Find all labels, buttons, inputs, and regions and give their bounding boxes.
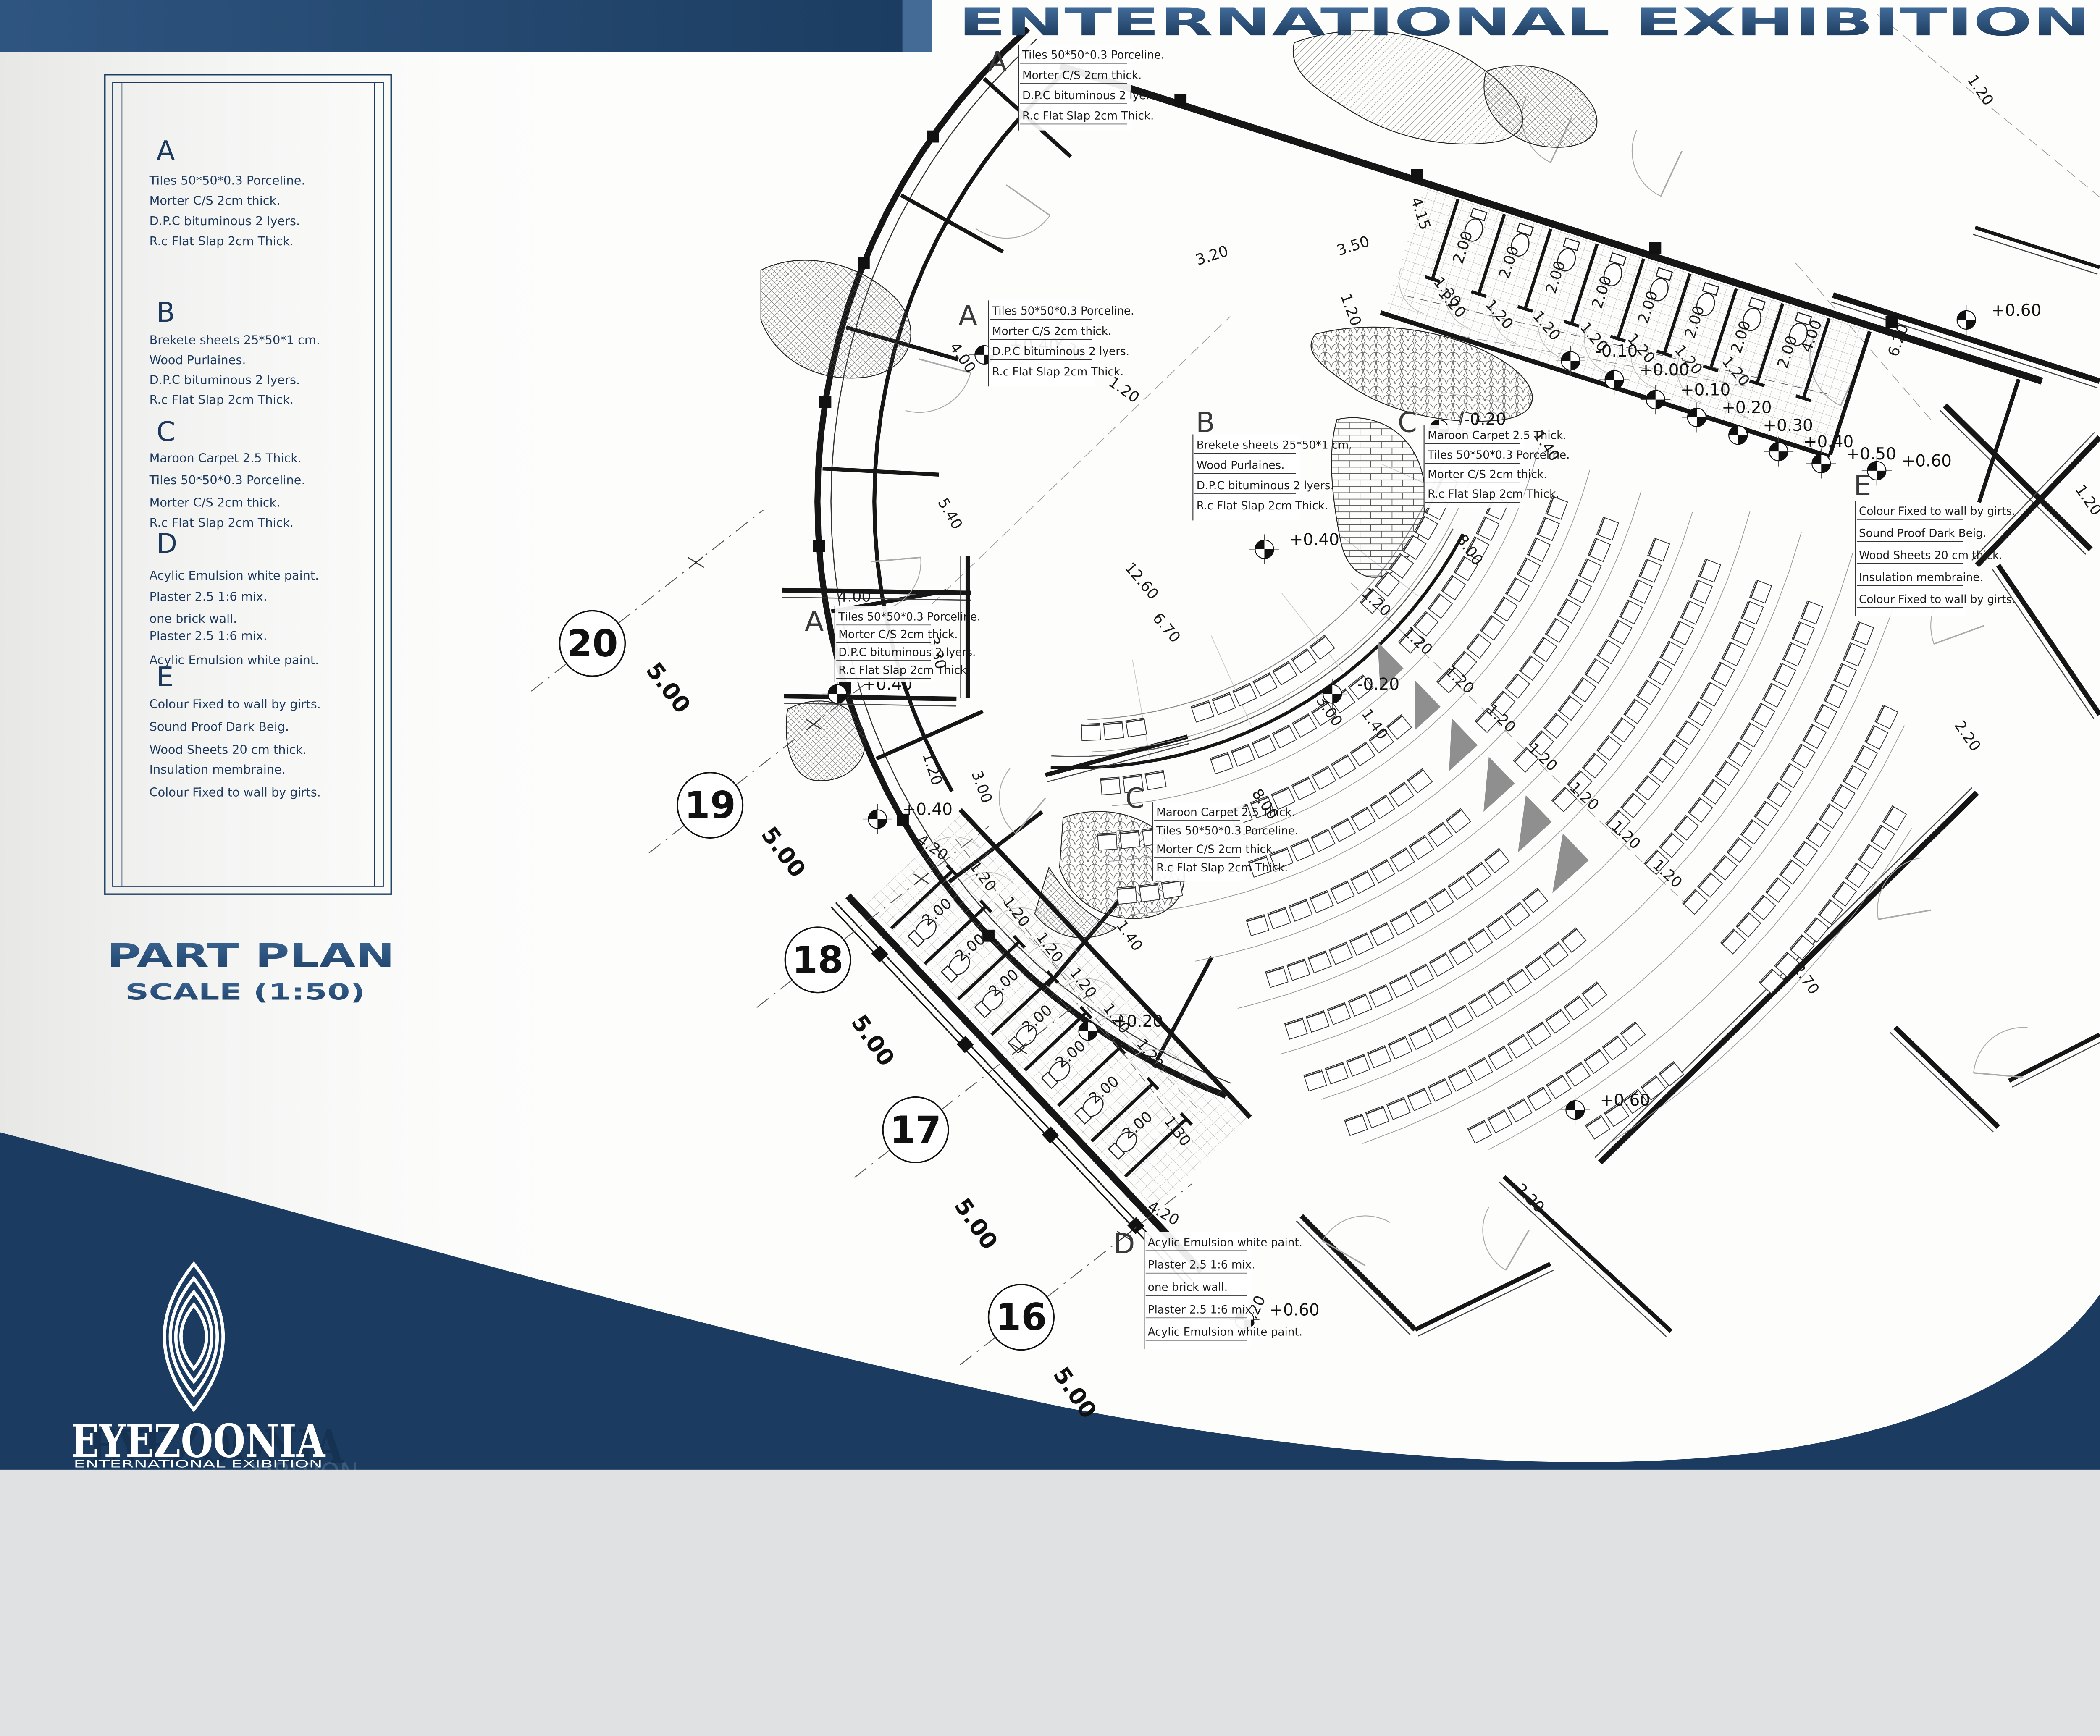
wall bbox=[784, 696, 957, 699]
seat bbox=[1081, 724, 1101, 741]
top-left-band-cap bbox=[903, 0, 932, 52]
seat bbox=[1161, 879, 1182, 899]
seat bbox=[1145, 771, 1166, 790]
legend-line: Colour Fixed to wall by girts. bbox=[150, 785, 321, 799]
legend-line: Tiles 50*50*0.3 Porceline. bbox=[149, 473, 305, 487]
legend-line: Insulation membraine. bbox=[150, 762, 286, 776]
legend-line: Sound Proof Dark Beig. bbox=[150, 720, 289, 734]
top-left-band bbox=[0, 0, 932, 52]
page-title: ENTERNATIONAL EXHIBITION bbox=[958, 0, 2091, 45]
note-line: Maroon Carpet 2.5 Thick. bbox=[1428, 430, 1567, 442]
seat bbox=[1104, 721, 1124, 740]
legend-line: Colour Fixed to wall by girts. bbox=[150, 697, 321, 711]
seat bbox=[1139, 883, 1160, 902]
wall bbox=[782, 590, 971, 593]
grid-bubble-number: 20 bbox=[567, 622, 618, 665]
note-line: Tiles 50*50*0.3 Porceline. bbox=[1022, 49, 1164, 62]
column bbox=[819, 396, 832, 408]
legend-line: D.P.C bituminous 2 lyers. bbox=[150, 372, 300, 387]
logo-subtitle: ENTERNATIONAL EXIBITION bbox=[73, 1458, 323, 1470]
note-line: Plaster 2.5 1:6 mix. bbox=[1148, 1259, 1255, 1272]
legend-line: Tiles 50*50*0.3 Porceline. bbox=[149, 173, 305, 187]
elevation-value: +0.40 bbox=[1289, 530, 1339, 549]
elevation-value: +0.60 bbox=[1991, 301, 2041, 320]
drawing-sheet: 20191817165.005.005.005.005.004.004.004.… bbox=[0, 0, 2100, 1470]
elevation-value: -0.10 bbox=[1596, 342, 1638, 361]
legend-letter: E bbox=[157, 661, 174, 693]
note-line: Sound Proof Dark Beig. bbox=[1859, 527, 1986, 540]
legend-letter: A bbox=[157, 135, 175, 167]
legend-letter: B bbox=[157, 297, 175, 328]
note-line: Tiles 50*50*0.3 Porceline. bbox=[838, 611, 980, 623]
note-line: Acylic Emulsion white paint. bbox=[1148, 1236, 1302, 1249]
note-letter: C bbox=[1398, 406, 1417, 439]
column bbox=[927, 131, 939, 143]
seat bbox=[1117, 886, 1137, 904]
note-line: R.c Flat Slap 2cm Thick. bbox=[992, 366, 1123, 378]
note-line: D.P.C bituminous 2 lyers. bbox=[1197, 480, 1334, 492]
note-line: Morter C/S 2cm thick. bbox=[992, 325, 1111, 338]
note-line: Tiles 50*50*0.3 Porceline. bbox=[1156, 825, 1298, 837]
note-line: Tiles 50*50*0.3 Porceline. bbox=[992, 305, 1134, 317]
seat bbox=[1097, 833, 1117, 850]
part-plan-drawing: 20191817165.005.005.005.005.004.004.004.… bbox=[0, 0, 2100, 1470]
note-line: Wood Purlaines. bbox=[1197, 459, 1285, 472]
elevation-value: +0.50 bbox=[1846, 445, 1896, 464]
note-line: D.P.C bituminous 2 lyers. bbox=[1022, 89, 1160, 102]
grid-bubble-number: 17 bbox=[890, 1108, 942, 1151]
column bbox=[858, 257, 870, 269]
grid-bubble-number: 16 bbox=[995, 1295, 1047, 1339]
column bbox=[1174, 94, 1186, 106]
column bbox=[813, 540, 825, 552]
note-line: Morter C/S 2cm thick. bbox=[1428, 469, 1547, 481]
legend-line: one brick wall. bbox=[150, 611, 237, 626]
legend-line: Morter C/S 2cm thick. bbox=[150, 495, 281, 509]
legend-line: Plaster 2.5 1:6 mix. bbox=[150, 590, 267, 604]
note-line: R.c Flat Slap 2cm Thick. bbox=[1428, 488, 1559, 501]
seat-back bbox=[1081, 725, 1100, 726]
note-line: R.c Flat Slap 2cm Thick. bbox=[1156, 862, 1288, 874]
column bbox=[1411, 169, 1423, 181]
legend-line: Wood Sheets 20 cm thick. bbox=[150, 742, 307, 757]
note-line: Colour Fixed to wall by girts. bbox=[1859, 593, 2015, 606]
note-letter: B bbox=[1196, 406, 1215, 439]
part-plan-title: PART PLAN bbox=[107, 937, 395, 975]
legend-line: Brekete sheets 25*50*1 cm. bbox=[150, 333, 320, 347]
note-line: R.c Flat Slap 2cm Thick. bbox=[1197, 500, 1328, 512]
seat bbox=[1126, 718, 1147, 737]
legend-letter: D bbox=[157, 528, 178, 559]
elevation-value: -0.20 bbox=[1357, 675, 1399, 694]
part-plan-scale: SCALE (1:50) bbox=[125, 980, 365, 1005]
elevation-value: +0.20 bbox=[1722, 399, 1772, 417]
legend-line: Wood Purlaines. bbox=[150, 353, 246, 367]
legend-line: R.c Flat Slap 2cm Thick. bbox=[150, 393, 294, 407]
grid-bubble-number: 19 bbox=[684, 784, 736, 827]
dim-label: 4.00 bbox=[838, 588, 871, 605]
note-line: Insulation membraine. bbox=[1859, 571, 1983, 584]
elevation-value: +0.60 bbox=[1600, 1091, 1650, 1110]
note-line: Plaster 2.5 1:6 mix. bbox=[1148, 1303, 1255, 1316]
elevation-value: +0.10 bbox=[1680, 380, 1730, 399]
note-line: Tiles 50*50*0.3 Porceline. bbox=[1427, 449, 1570, 462]
note-letter: A bbox=[958, 300, 977, 332]
seat bbox=[1120, 830, 1140, 849]
legend-line: R.c Flat Slap 2cm Thick. bbox=[150, 234, 294, 248]
note-letter: D bbox=[1114, 1227, 1135, 1260]
note-line: Brekete sheets 25*50*1 cm. bbox=[1197, 439, 1352, 451]
legend-line: Acylic Emulsion white paint. bbox=[150, 568, 319, 582]
legend-letter: C bbox=[157, 416, 176, 448]
note-line: Acylic Emulsion white paint. bbox=[1148, 1326, 1302, 1339]
note-line: Morter C/S 2cm thick. bbox=[1022, 69, 1142, 82]
note-letter: E bbox=[1854, 469, 1872, 501]
note-letter: A bbox=[988, 45, 1007, 78]
elevation-value: +0.60 bbox=[1269, 1301, 1319, 1319]
note-letter: C bbox=[1125, 782, 1144, 814]
elevation-value: +0.00 bbox=[1639, 361, 1689, 380]
note-line: Morter C/S 2cm thick. bbox=[838, 629, 958, 641]
legend-line: Maroon Carpet 2.5 Thick. bbox=[150, 451, 302, 465]
legend-line: Morter C/S 2cm thick. bbox=[150, 194, 281, 208]
note-line: Wood Sheets 20 cm thick. bbox=[1859, 549, 2003, 562]
grid-bubble-number: 18 bbox=[792, 938, 844, 981]
elevation-value: +0.20 bbox=[1113, 1012, 1163, 1031]
elevation-value: +0.40 bbox=[903, 800, 953, 819]
legend-line: Acylic Emulsion white paint. bbox=[150, 653, 319, 667]
note-line: Maroon Carpet 2.5 Thick. bbox=[1156, 806, 1295, 819]
column bbox=[1649, 242, 1662, 254]
note-line: D.P.C bituminous 2 lyers. bbox=[838, 646, 976, 659]
header: ENTERNATIONAL EXHIBITION bbox=[958, 0, 2091, 45]
note-line: D.P.C bituminous 2 lyers. bbox=[992, 346, 1129, 358]
legend-line: D.P.C bituminous 2 lyers. bbox=[150, 214, 300, 228]
note-line: Colour Fixed to wall by girts. bbox=[1859, 505, 2015, 518]
seat bbox=[1101, 777, 1121, 795]
note-line: Morter C/S 2cm thick. bbox=[1156, 843, 1276, 856]
elevation-value: +0.60 bbox=[1902, 452, 1952, 471]
legend-line: R.c Flat Slap 2cm Thick. bbox=[150, 516, 294, 530]
note-line: R.c Flat Slap 2cm Thick. bbox=[838, 664, 970, 677]
legend-line: Plaster 2.5 1:6 mix. bbox=[150, 629, 267, 643]
note-line: R.c Flat Slap 2cm Thick. bbox=[1022, 110, 1154, 122]
note-line: one brick wall. bbox=[1148, 1281, 1228, 1294]
note-letter: A bbox=[805, 606, 824, 638]
